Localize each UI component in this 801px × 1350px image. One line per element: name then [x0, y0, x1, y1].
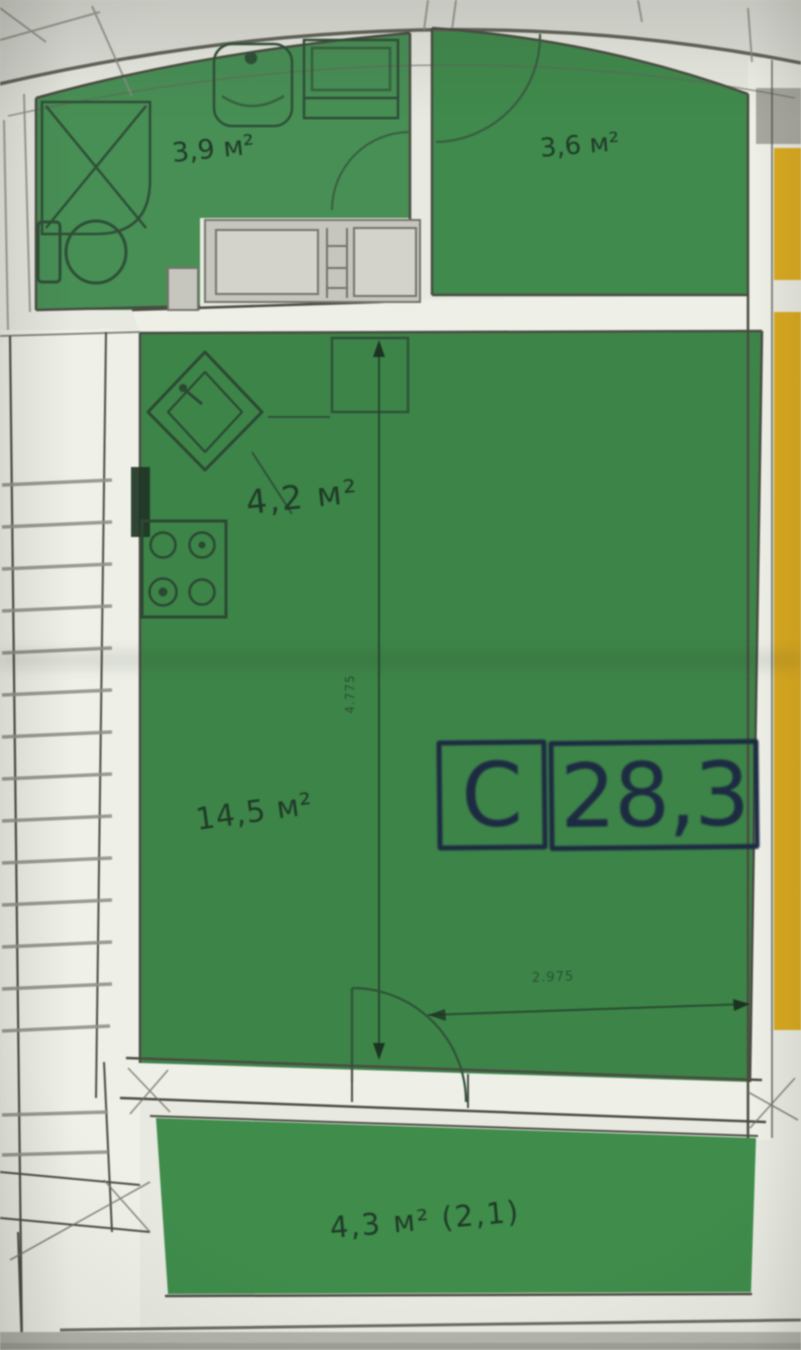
floorplan-drawing: [0, 0, 801, 1350]
horizontal-dimension-label: 2.975: [532, 971, 575, 985]
total-area-badge: 28,3: [548, 739, 759, 851]
wardrobe-icon: [168, 220, 420, 310]
unit-type-badge: С: [436, 739, 547, 850]
neighbor-room-top: [774, 148, 801, 280]
vertical-dimension-label: 4.775: [344, 664, 360, 724]
neighbor-gray-area: [756, 88, 801, 144]
hall-area-label: 3,6 м²: [539, 129, 621, 162]
bathroom-area-label: 3,9 м²: [171, 131, 256, 166]
neighbor-room-bottom: [774, 312, 801, 1030]
floorplan-photo: 3,9 м² 3,6 м² 4,2 м² 14,5 м² 4,3 м² (2,1…: [0, 0, 801, 1350]
photo-bottom-edge-dark: [0, 1343, 801, 1350]
main-room-floor: [140, 331, 762, 1082]
photo-crease-shadow: [0, 652, 801, 668]
